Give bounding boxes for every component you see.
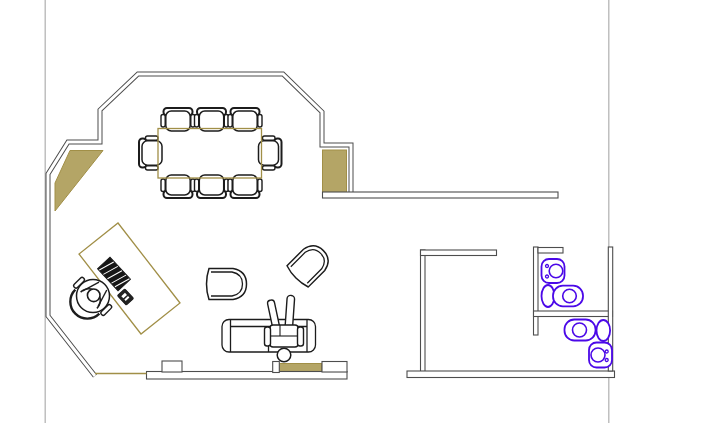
chair-symbol[interactable]: [195, 108, 229, 131]
wall-bottom-pier-mid[interactable]: [273, 362, 280, 373]
wash-basin-symbol[interactable]: [589, 343, 612, 368]
restroom-walls[interactable]: [407, 247, 615, 378]
toilet-symbol[interactable]: [542, 285, 584, 307]
tub-chair[interactable]: [207, 269, 247, 300]
restroom-wall-top[interactable]: [421, 250, 497, 256]
wall-long-right[interactable]: [323, 192, 559, 198]
chair-symbol[interactable]: [228, 108, 262, 131]
wall-bottom-pier-right[interactable]: [322, 362, 347, 373]
person-head: [277, 348, 291, 362]
lounge-chairs: [207, 240, 335, 300]
restroom-wall-bottom-bar[interactable]: [407, 371, 615, 378]
page-guide-lines: [45, 0, 609, 423]
restroom-stall-divider[interactable]: [534, 311, 613, 317]
wall-bottom-bar[interactable]: [147, 372, 348, 380]
restroom-stall-stub-top[interactable]: [538, 248, 563, 254]
restroom-stall-wall-left[interactable]: [534, 247, 539, 335]
wall-fill-panel-left[interactable]: [55, 151, 103, 212]
conference-chairs: [139, 108, 282, 198]
drawing-canvas[interactable]: [0, 0, 707, 423]
conference-table[interactable]: [158, 129, 262, 179]
tub-chair[interactable]: [285, 240, 334, 289]
chair-symbol[interactable]: [161, 108, 195, 131]
restroom-wall-left[interactable]: [421, 250, 426, 372]
toilet-symbol[interactable]: [565, 320, 611, 342]
wall-fill-panel-right[interactable]: [323, 150, 347, 193]
wall-bottom-pier-left[interactable]: [162, 361, 182, 372]
wash-basin-symbol[interactable]: [542, 259, 565, 283]
